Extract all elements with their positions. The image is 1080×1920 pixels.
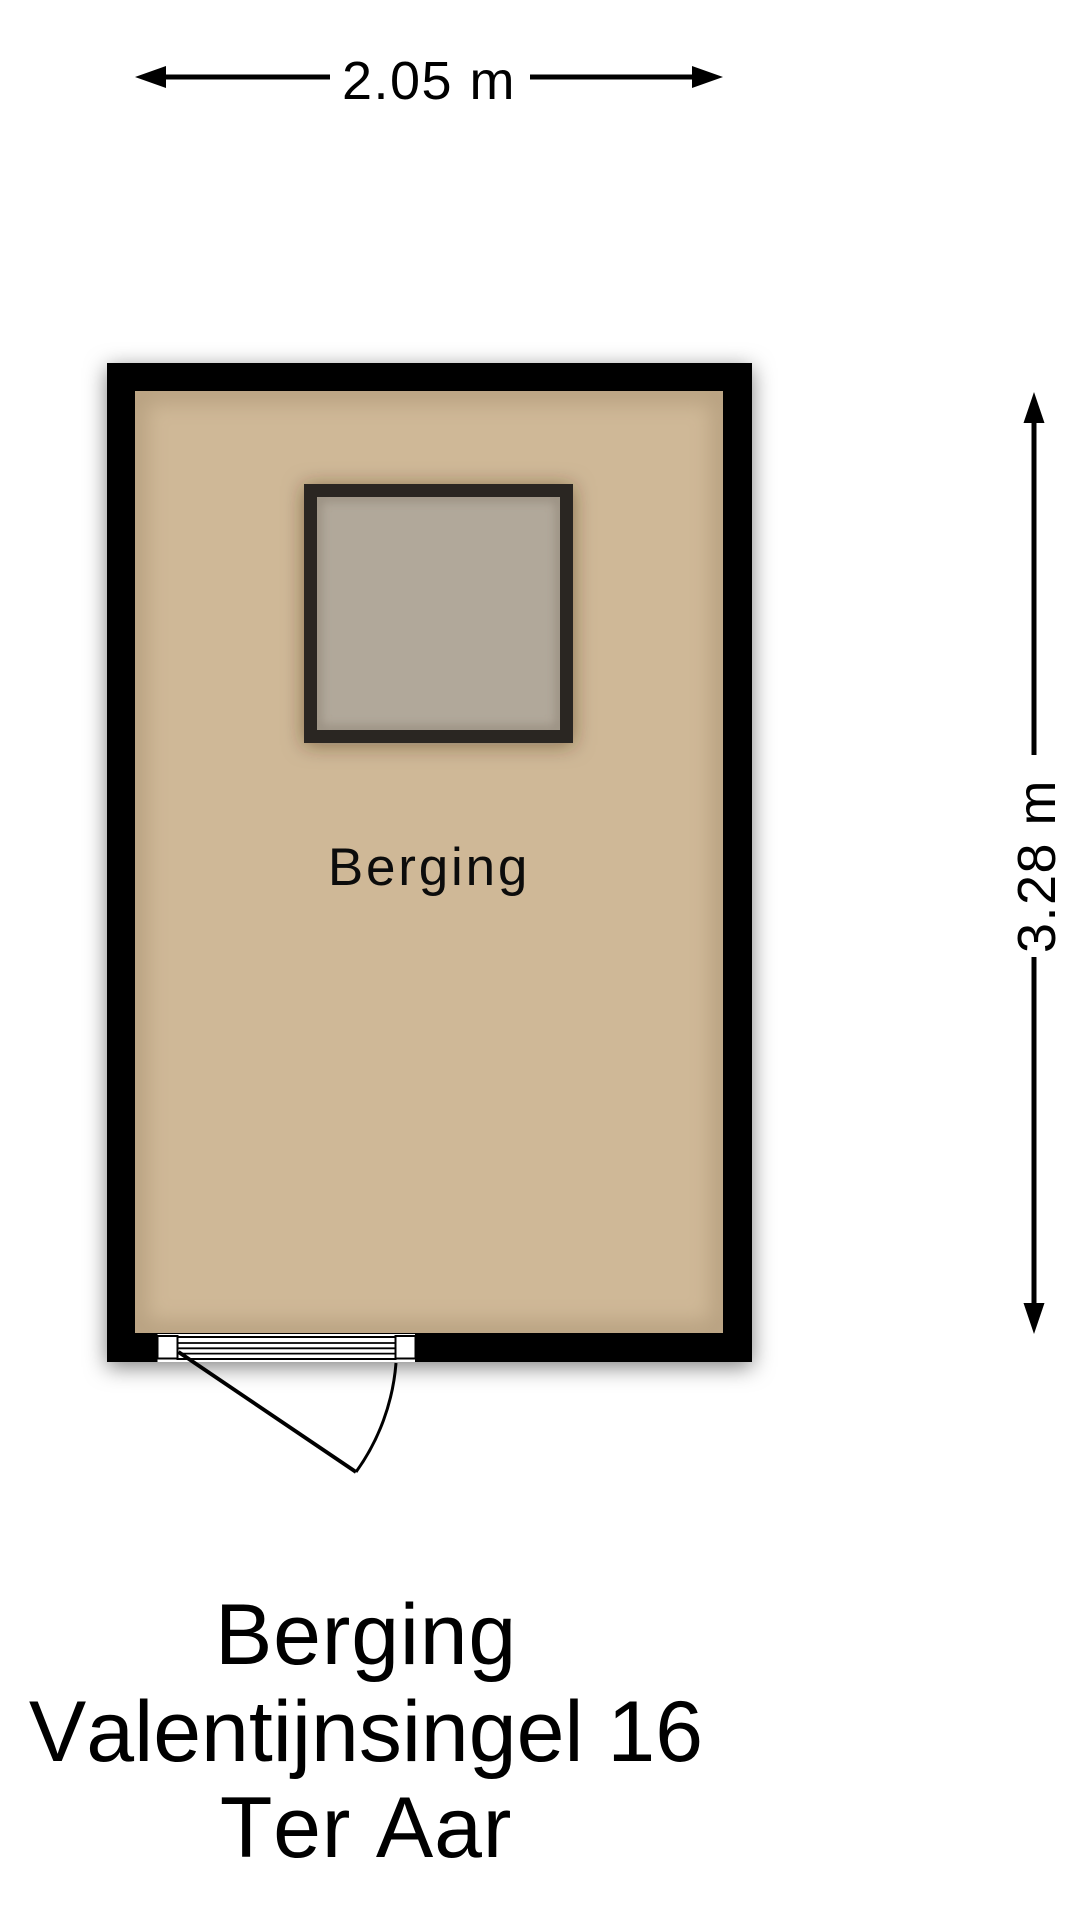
svg-text:2.05 m: 2.05 m xyxy=(342,51,516,111)
svg-text:Ter Aar: Ter Aar xyxy=(220,1780,512,1876)
svg-text:3.28 m: 3.28 m xyxy=(1007,779,1067,953)
svg-text:Berging: Berging xyxy=(215,1587,517,1683)
svg-text:Valentijnsingel 16: Valentijnsingel 16 xyxy=(29,1684,703,1780)
svg-text:Berging: Berging xyxy=(328,838,530,897)
